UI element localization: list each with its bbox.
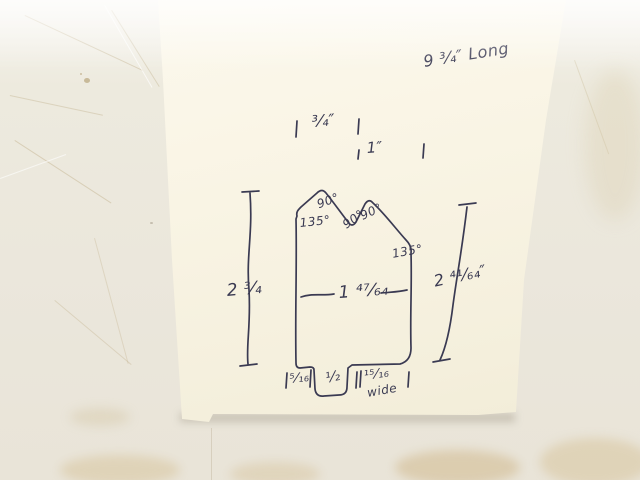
- right-dimension-cap-bottom: [433, 359, 450, 362]
- left-dimension-line: [248, 193, 251, 364]
- ink-drawing: [0, 0, 640, 480]
- part-outline: [296, 191, 412, 397]
- tick-mark: [296, 121, 297, 137]
- right-dimension-line: [440, 207, 467, 360]
- left-dimension-cap-top: [242, 191, 259, 192]
- tick-mark: [310, 370, 311, 387]
- tick-mark: [356, 372, 357, 388]
- tick-mark: [358, 119, 359, 134]
- tick-mark: [408, 372, 409, 387]
- right-dimension-cap-top: [459, 203, 476, 205]
- tick-mark: [423, 144, 424, 158]
- width-dimension-line-left: [301, 294, 334, 297]
- photo-of-hand-drawn-sketch: 9 ³⁄₄″ Long ³⁄₄″ 1″ 90° 135° 90° 90° 135…: [0, 0, 640, 480]
- left-dimension-cap-bottom: [240, 364, 257, 366]
- width-dimension-line-right: [381, 290, 407, 293]
- tick-mark: [358, 150, 359, 159]
- tick-mark: [360, 371, 361, 387]
- tick-mark: [286, 373, 287, 388]
